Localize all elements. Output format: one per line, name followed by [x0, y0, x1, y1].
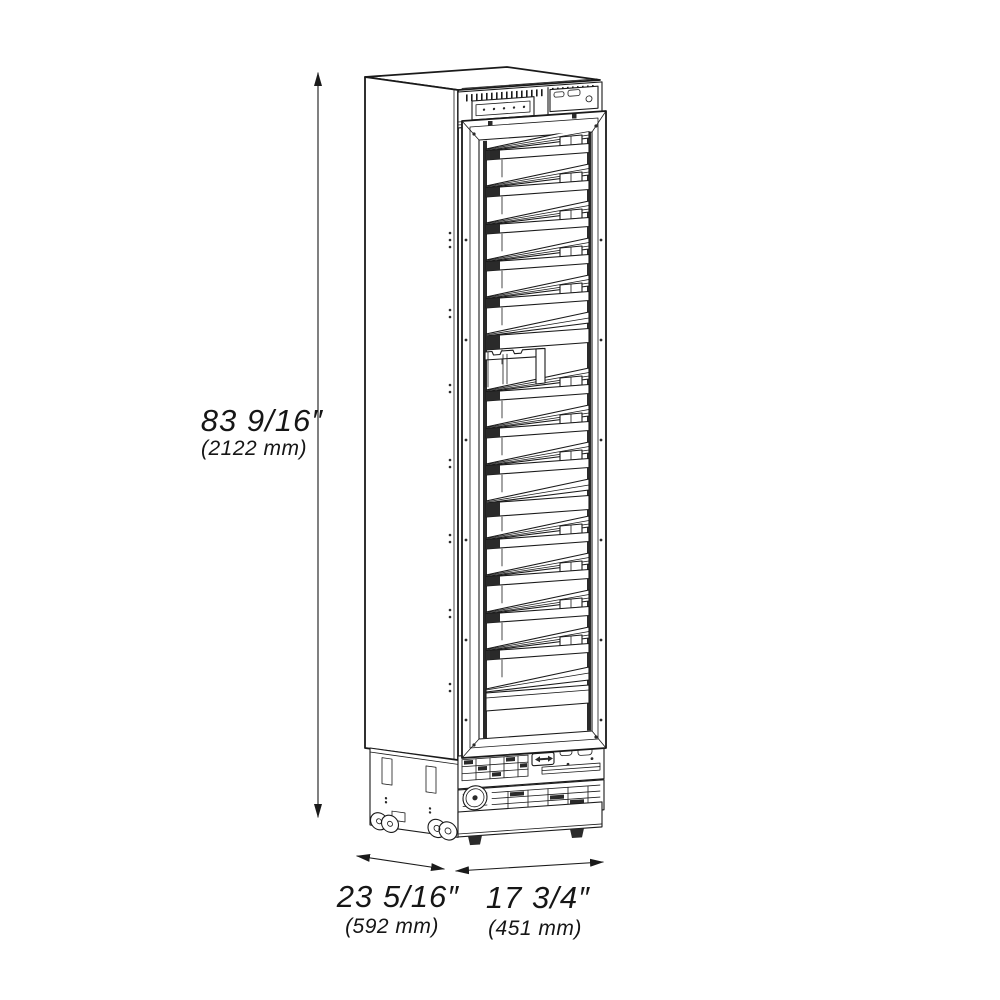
width-dimension-arrow	[456, 862, 603, 871]
door-assembly	[462, 111, 606, 758]
leveling-foot	[468, 835, 482, 845]
height-metric-label: (2122 mm)	[201, 437, 307, 460]
depth-dimension	[357, 856, 444, 869]
depth-metric-label: (592 mm)	[345, 915, 439, 938]
wine-cooler-dimension-drawing: 83 9/16″ (2122 mm) 23 5/16″ (592 mm) 17 …	[0, 0, 1000, 1000]
airflow-arrow-icon	[532, 752, 554, 766]
width-metric-label: (451 mm)	[488, 917, 582, 940]
width-dimension	[456, 862, 603, 871]
depth-imperial-label: 23 5/16″	[336, 879, 459, 914]
left-base-panel	[370, 748, 458, 842]
cabinet-side-panel	[365, 77, 458, 760]
product-dimension-diagram: 83 9/16″ (2122 mm) 23 5/16″ (592 mm) 17 …	[0, 0, 1000, 1000]
depth-dimension-arrow	[357, 856, 444, 869]
leveling-foot	[570, 828, 584, 838]
width-imperial-label: 17 3/4″	[486, 880, 590, 915]
wine-cooler-illustration	[365, 67, 606, 846]
height-imperial-label: 83 9/16″	[201, 403, 323, 438]
